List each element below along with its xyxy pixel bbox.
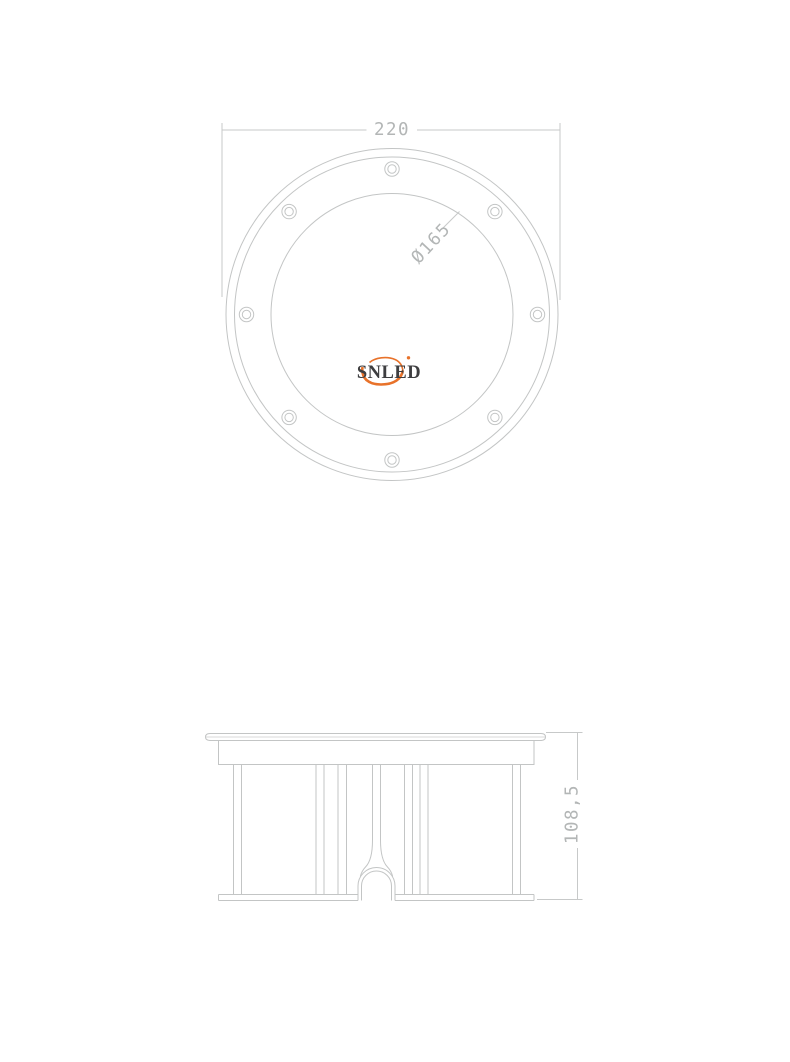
brand-logo: SNLED [357,356,421,384]
flange-outer-circle [226,149,558,481]
screw-hole [385,162,399,176]
screw-hole [488,410,502,424]
screw-hole [282,204,296,218]
lens-diameter-callout: Ø165 [408,212,460,268]
logo-spark-dot [407,356,410,359]
housing-ribs [234,765,521,895]
screw-hole [385,453,399,467]
screw-hole [282,410,296,424]
dimension-108-5-label: 108,5 [563,784,583,844]
bottom-plate [219,895,535,901]
screw-holes [239,162,544,467]
technical-drawing-page: 220 Ø165 SNLED [0,0,790,1062]
dimension-108-5: 108,5 [537,733,583,900]
flange-rim-inner-circle [235,157,550,472]
top-view: 220 Ø165 SNLED [222,120,560,481]
drawing-sheet: 220 Ø165 SNLED [0,0,790,1062]
lens-circle [271,194,513,436]
upper-body-band [219,741,535,765]
cable-tube [360,765,392,877]
tube-wall-right [381,765,393,877]
dimension-220-label: 220 [374,120,410,140]
notch-outer-arch [358,868,395,901]
screw-hole [488,204,502,218]
logo-text: SNLED [357,363,421,383]
lens-diameter-label: Ø165 [408,219,455,268]
screw-hole [530,307,544,321]
tube-wall-left [360,765,372,877]
cable-notch [358,868,395,901]
side-view: 108,5 [206,733,583,901]
screw-hole [239,307,253,321]
notch-inner-arch [362,871,392,900]
